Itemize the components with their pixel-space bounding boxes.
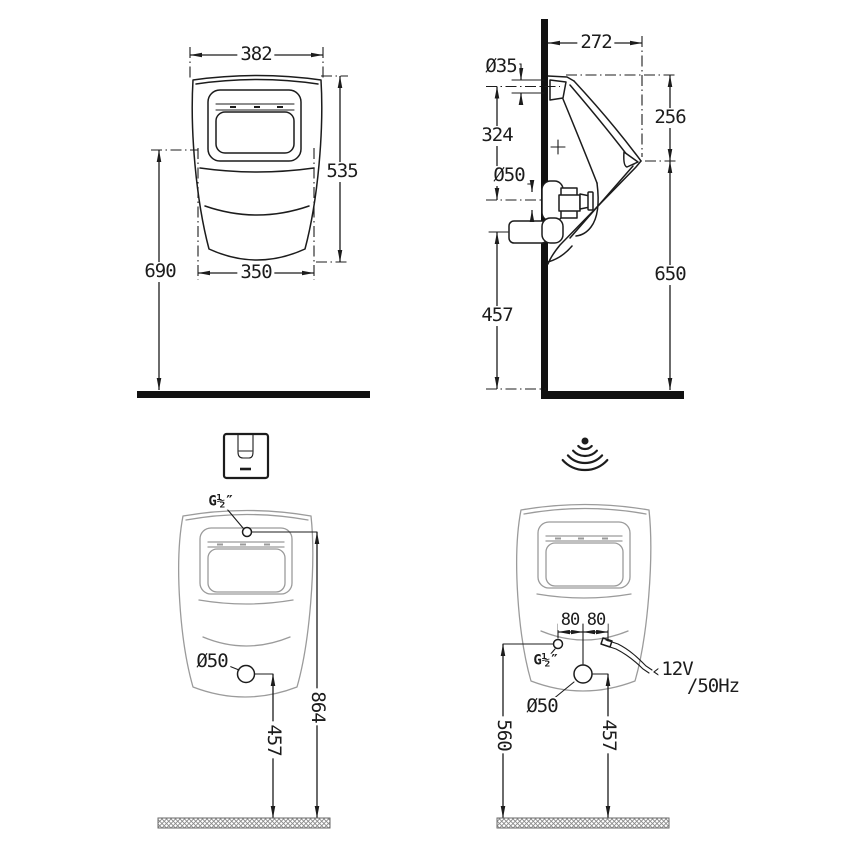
- dim-side-depth: 272: [577, 33, 614, 53]
- dim-side-inlet-diameter: Ø35: [482, 57, 519, 77]
- dim-side-rim-drop: 256: [651, 108, 688, 128]
- dimensions-front-installed: [151, 47, 348, 390]
- dim-sensor-spacing-left: 80: [558, 612, 582, 630]
- dim-side-outlet-diameter: Ø50: [490, 166, 527, 186]
- urinal-front-outline: [192, 76, 322, 261]
- dim-side-inlet-drop: 324: [478, 126, 515, 146]
- dim-front-bottom-width: 350: [237, 263, 274, 283]
- dim-sensor-inlet-height: 560: [493, 716, 513, 753]
- label-power-frequency: /50Hz: [684, 677, 742, 697]
- dim-front-top-width: 382: [237, 45, 274, 65]
- water-inlet-hole: [243, 528, 252, 537]
- dim-sensor-outlet-height: 457: [598, 716, 618, 753]
- dim-front-height: 535: [323, 162, 360, 182]
- outlet-hole: [574, 665, 592, 683]
- floor-line: [137, 391, 370, 398]
- floor-line: [541, 391, 684, 399]
- drawing-linework: [0, 0, 868, 868]
- label-sensor-water-inlet: G½″: [530, 654, 561, 669]
- inlet-leader-line: [227, 509, 243, 528]
- dim-manual-outlet-diameter: Ø50: [193, 652, 230, 672]
- mount-cross-mark: [551, 140, 565, 154]
- floor-hatch: [158, 818, 330, 828]
- label-manual-water-inlet: G½″: [205, 495, 236, 510]
- flush-plate-icon: [224, 434, 268, 478]
- water-inlet-hole: [554, 640, 563, 649]
- dim-manual-inlet-height: 864: [307, 688, 327, 725]
- floor-hatch: [497, 818, 669, 828]
- view-front-sensor: [497, 505, 669, 829]
- dim-side-rim-height: 650: [651, 265, 688, 285]
- technical-drawing: 382 535 690 350 272 Ø35 324 256 Ø50 650 …: [0, 0, 868, 868]
- drain-and-inlet-fittings: [509, 181, 593, 243]
- view-front-installed: [137, 47, 370, 398]
- outlet-hole: [238, 666, 255, 683]
- wireless-signal-icon: [563, 438, 608, 471]
- dim-sensor-spacing-right: 80: [584, 612, 608, 630]
- dim-side-outlet-height: 457: [478, 306, 515, 326]
- power-cable: [601, 638, 663, 678]
- dim-front-mount-height: 690: [141, 262, 178, 282]
- dim-manual-outlet-height: 457: [263, 721, 283, 758]
- view-front-manual: [158, 509, 330, 828]
- dim-sensor-outlet-diameter: Ø50: [523, 697, 560, 717]
